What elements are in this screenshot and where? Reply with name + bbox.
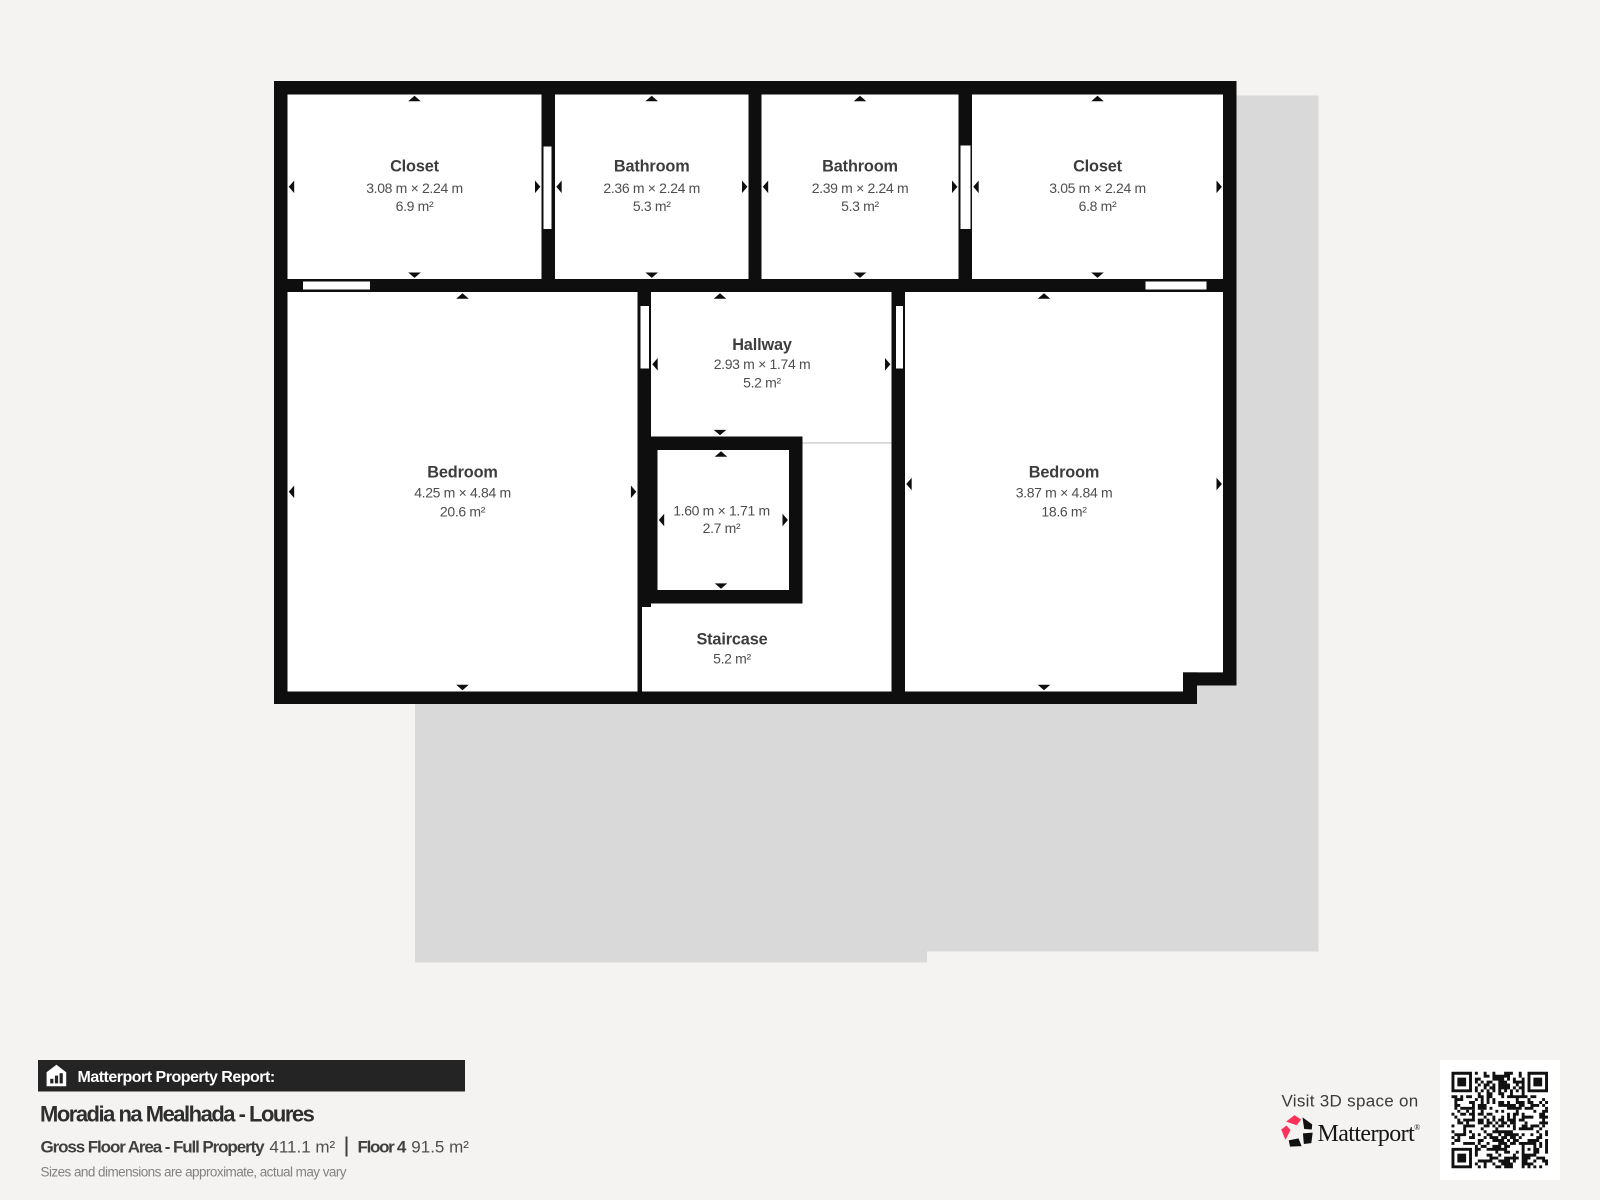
svg-text:6.9 m²: 6.9 m² <box>396 198 434 214</box>
svg-text:3.08 m × 2.24 m: 3.08 m × 2.24 m <box>366 180 463 196</box>
svg-text:5.2 m²: 5.2 m² <box>743 375 781 391</box>
svg-text:2.7 m²: 2.7 m² <box>703 520 741 536</box>
svg-text:Moradia na Mealhada - Loures: Moradia na Mealhada - Loures <box>40 1102 315 1127</box>
svg-text:Bathroom: Bathroom <box>614 158 690 176</box>
svg-text:2.93 m × 1.74 m: 2.93 m × 1.74 m <box>714 356 811 372</box>
svg-text:Matterport®: Matterport® <box>1318 1121 1421 1147</box>
svg-text:Visit 3D space on: Visit 3D space on <box>1281 1091 1418 1110</box>
svg-text:2.39 m × 2.24 m: 2.39 m × 2.24 m <box>812 180 909 196</box>
svg-text:Floor 4: Floor 4 <box>358 1138 407 1157</box>
svg-text:Bedroom: Bedroom <box>427 463 497 481</box>
svg-text:20.6 m²: 20.6 m² <box>440 504 486 520</box>
svg-text:411.1 m²: 411.1 m² <box>269 1138 335 1157</box>
svg-text:5.3 m²: 5.3 m² <box>841 198 879 214</box>
svg-text:2.36 m × 2.24 m: 2.36 m × 2.24 m <box>603 180 700 196</box>
svg-text:Closet: Closet <box>390 158 440 176</box>
svg-text:Hallway: Hallway <box>732 336 792 354</box>
svg-text:Closet: Closet <box>1073 158 1123 176</box>
svg-text:Gross Floor Area - Full Proper: Gross Floor Area - Full Property <box>41 1138 266 1157</box>
svg-text:1.60 m × 1.71 m: 1.60 m × 1.71 m <box>673 502 770 518</box>
svg-text:Staircase: Staircase <box>696 631 767 649</box>
svg-text:3.87 m × 4.84 m: 3.87 m × 4.84 m <box>1016 484 1113 500</box>
svg-text:4.25 m × 4.84 m: 4.25 m × 4.84 m <box>414 484 511 500</box>
svg-text:Bathroom: Bathroom <box>822 158 898 176</box>
svg-text:Matterport Property Report:: Matterport Property Report: <box>78 1069 275 1086</box>
svg-text:5.2 m²: 5.2 m² <box>713 651 751 667</box>
svg-text:91.5 m²: 91.5 m² <box>411 1138 469 1157</box>
svg-text:5.3 m²: 5.3 m² <box>633 198 671 214</box>
svg-text:18.6 m²: 18.6 m² <box>1041 504 1087 520</box>
svg-text:6.8 m²: 6.8 m² <box>1079 198 1117 214</box>
svg-text:Bedroom: Bedroom <box>1029 463 1099 481</box>
svg-text:3.05 m × 2.24 m: 3.05 m × 2.24 m <box>1049 180 1146 196</box>
svg-text:Sizes and dimensions are appro: Sizes and dimensions are approximate, ac… <box>41 1165 347 1180</box>
